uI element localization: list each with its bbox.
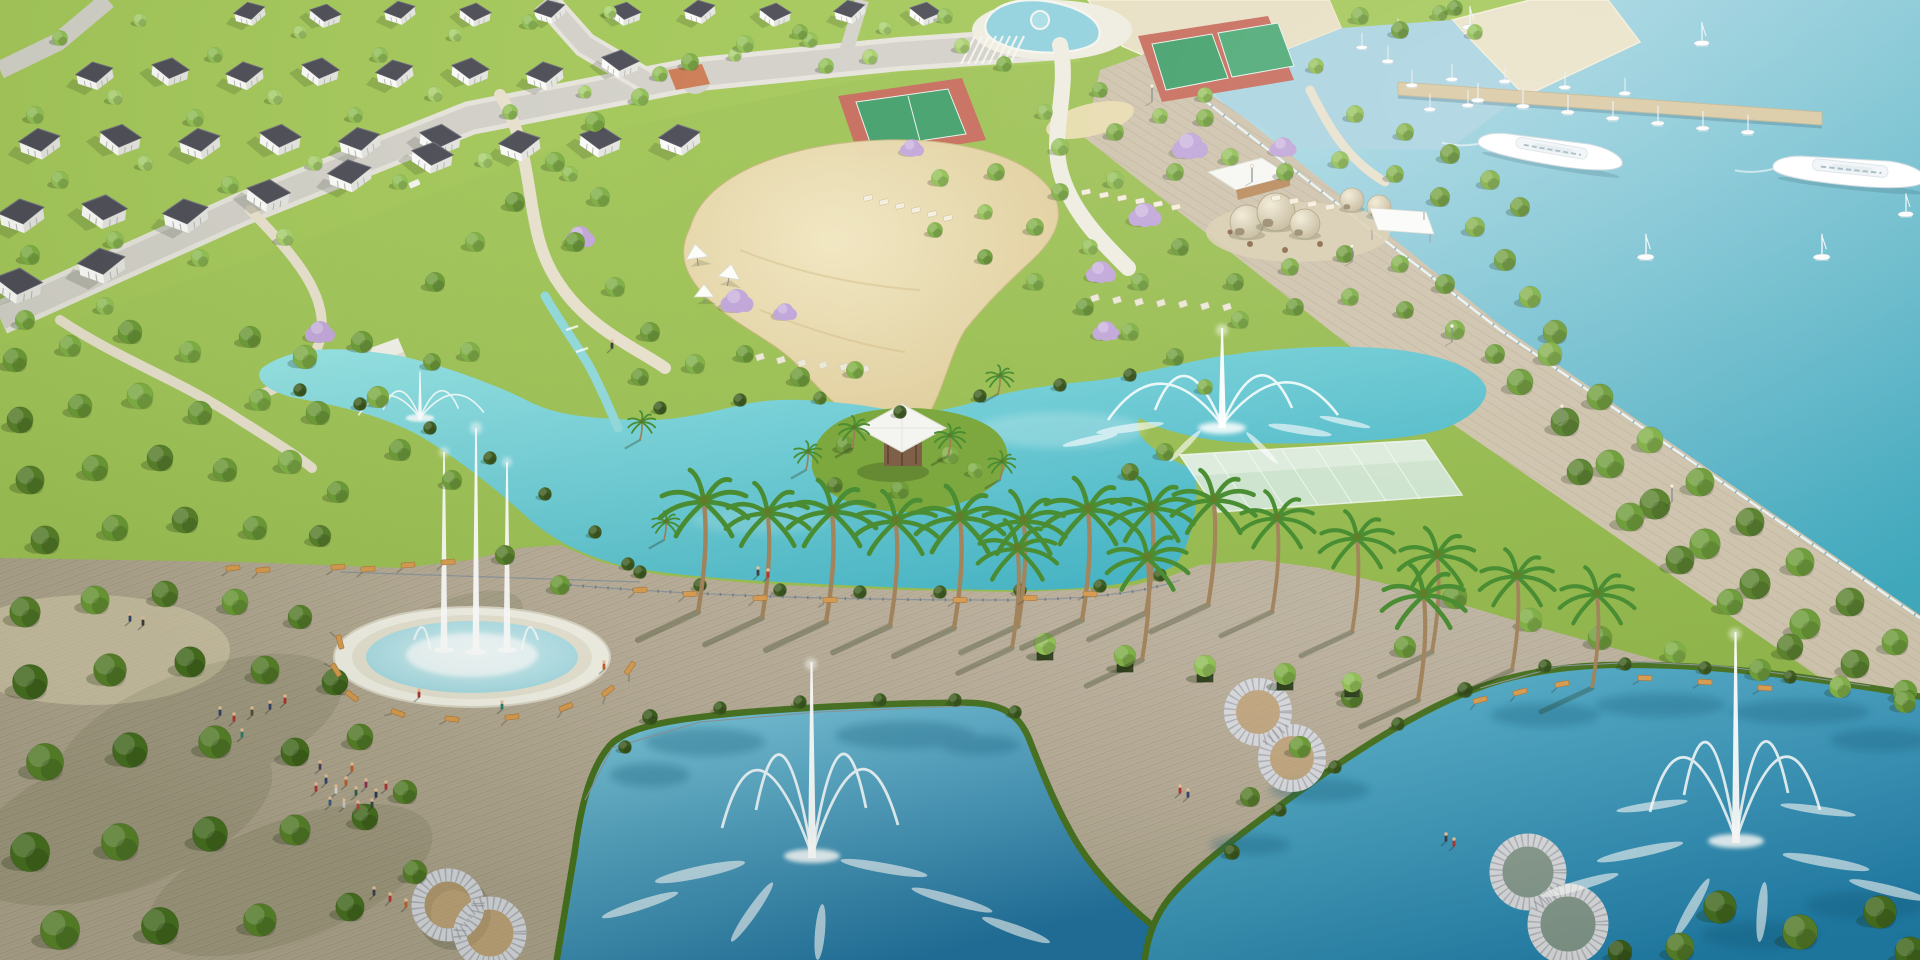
aerial-resort-rendering: Aerial rendering — waterfront park and m… — [0, 0, 1920, 960]
cabana-dome — [1289, 209, 1321, 240]
fountain-foam — [1708, 834, 1764, 848]
scene-canvas: Aerial rendering — waterfront park and m… — [0, 0, 1920, 960]
jet-top — [1729, 628, 1741, 640]
kids-pool — [1031, 11, 1049, 29]
event-tent — [1370, 208, 1434, 234]
jet-top — [805, 658, 817, 670]
cabana-dome — [1339, 188, 1365, 213]
jet-top — [1216, 324, 1228, 336]
fountain-foam — [1198, 422, 1246, 434]
fountain-mist — [406, 633, 538, 677]
fountain-foam — [784, 849, 840, 863]
